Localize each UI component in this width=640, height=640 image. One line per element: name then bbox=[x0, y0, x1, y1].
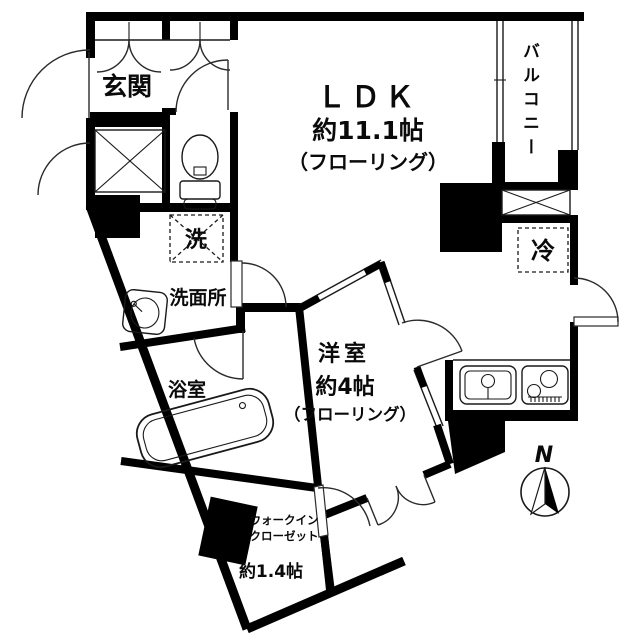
washroom-label: 洗面所 bbox=[169, 286, 226, 309]
ldk-size-label: 約11.1帖 bbox=[312, 116, 424, 145]
pillar-ldk bbox=[440, 183, 502, 252]
washer-label: 洗 bbox=[185, 228, 207, 253]
ldk-floor-label: （フローリング） bbox=[288, 150, 448, 174]
wic-label-line2: クローゼット bbox=[250, 529, 319, 543]
western-room-floor-label: （フローリング） bbox=[284, 404, 416, 424]
wic-size-label: 約1.4帖 bbox=[239, 561, 303, 582]
floor-plan: 玄関 ＬＤＫ 約11.1帖 （フローリング） バルコニー 洗 洗面所 浴室 洋室… bbox=[0, 0, 640, 640]
entrance-label: 玄関 bbox=[102, 72, 152, 101]
kitchen-side-door-leaf bbox=[574, 317, 618, 326]
pillar-entrance-lower bbox=[95, 195, 140, 238]
western-room-size-label: 約4帖 bbox=[315, 374, 374, 400]
bathroom-label: 浴室 bbox=[168, 378, 206, 401]
wic-label-line1: ウォークイン bbox=[250, 513, 319, 527]
balcony-label: バルコニー bbox=[519, 42, 540, 162]
compass-north-label: N bbox=[535, 443, 553, 468]
ldk-label: ＬＤＫ bbox=[317, 80, 419, 114]
washroom-door-leaf bbox=[231, 261, 242, 307]
floor-plan-canvas: 玄関 ＬＤＫ 約11.1帖 （フローリング） バルコニー 洗 洗面所 浴室 洋室… bbox=[0, 0, 640, 640]
western-room-label: 洋室 bbox=[318, 341, 370, 367]
refrigerator-label: 冷 bbox=[531, 237, 555, 265]
